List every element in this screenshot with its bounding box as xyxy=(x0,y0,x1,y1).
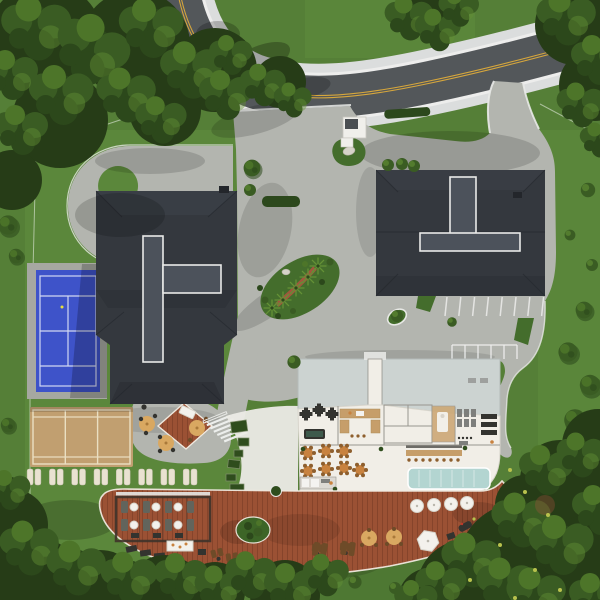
hedge-row-2 xyxy=(262,196,300,207)
roof-terrace-east-a xyxy=(450,177,476,234)
building-east xyxy=(376,170,545,296)
cart xyxy=(198,549,206,555)
sun-lounger xyxy=(116,469,122,485)
sun-lounger xyxy=(169,469,175,485)
sun-lounger xyxy=(80,469,86,485)
island-rock xyxy=(282,269,290,275)
tennis-ball xyxy=(61,306,64,309)
sun-lounger xyxy=(94,469,100,485)
roof-vent-2 xyxy=(480,378,488,383)
tree-shadow-on-roof xyxy=(75,193,165,237)
roof-terrace-west-a xyxy=(143,236,163,362)
sun-lounger xyxy=(183,469,189,485)
building-east-hedges xyxy=(382,158,420,172)
indoor-pool xyxy=(408,468,490,489)
site-plan-canvas xyxy=(0,0,600,600)
amenity-building xyxy=(298,352,500,492)
site-plan-render xyxy=(0,0,600,600)
sun-lounger xyxy=(57,469,63,485)
roof-terrace-west-b xyxy=(163,265,221,293)
sun-lounger xyxy=(191,469,197,485)
bocce-courts xyxy=(30,407,133,467)
sun-lounger xyxy=(35,469,41,485)
sun-lounger xyxy=(161,469,167,485)
chimney xyxy=(219,186,229,193)
sun-lounger xyxy=(124,469,130,485)
kitchen-counters xyxy=(300,477,336,489)
sun-lounger xyxy=(146,469,152,485)
clubhouse-roof-west xyxy=(298,359,368,409)
clubhouse-corner-bush xyxy=(287,355,300,368)
sun-lounger xyxy=(49,469,55,485)
sun-lounger xyxy=(102,469,108,485)
chimney-east xyxy=(513,192,522,198)
plaza-bush xyxy=(447,317,457,327)
sun-lounger xyxy=(72,469,78,485)
roof-vent xyxy=(468,378,476,383)
massage-room xyxy=(432,406,455,442)
sun-lounger xyxy=(139,469,145,485)
entry-corridor xyxy=(368,359,382,407)
roof-terrace-east-b xyxy=(420,233,520,251)
deck-planting-bed xyxy=(236,517,270,543)
round-planter xyxy=(271,486,282,497)
shrub xyxy=(391,310,403,322)
